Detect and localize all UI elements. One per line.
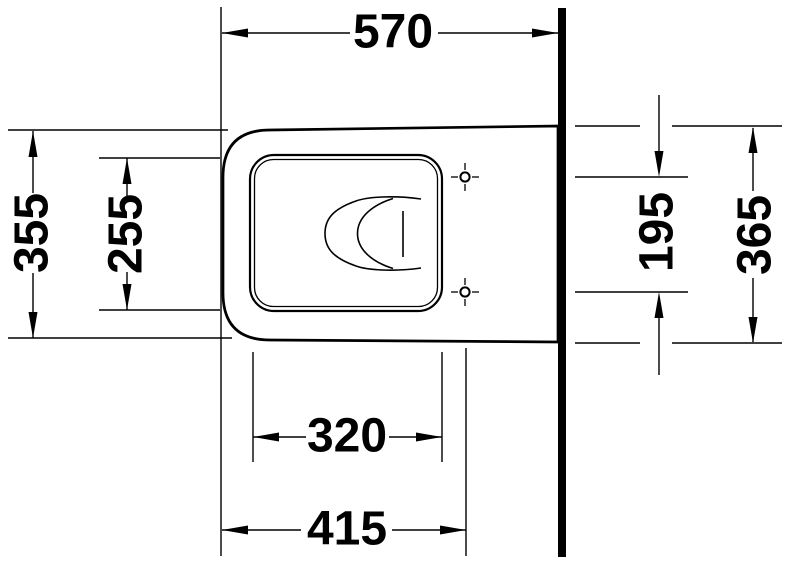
dim-label-570: 570 bbox=[353, 6, 433, 59]
dim-label-255: 255 bbox=[100, 194, 153, 274]
dim-label-320: 320 bbox=[307, 410, 387, 463]
dim-label-355: 355 bbox=[6, 193, 59, 273]
dim-label-365: 365 bbox=[729, 195, 782, 275]
dim-label-195: 195 bbox=[631, 192, 684, 272]
drawing-page: 570 355 255 195 365 320 bbox=[0, 0, 788, 563]
fixing-hole-circle bbox=[460, 287, 469, 296]
background bbox=[0, 0, 788, 563]
dim-label-415: 415 bbox=[307, 503, 387, 556]
fixing-hole-circle bbox=[460, 172, 469, 181]
drawing-canvas: 570 355 255 195 365 320 bbox=[0, 0, 788, 563]
